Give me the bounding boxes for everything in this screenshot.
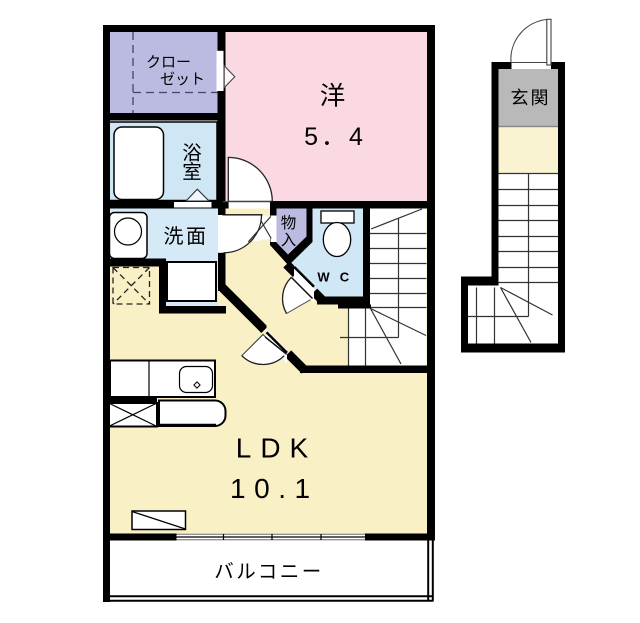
svg-text:LDK: LDK [236,433,317,464]
svg-text:C: C [340,270,350,285]
svg-text:洋: 洋 [320,83,346,111]
svg-text:10.1: 10.1 [230,473,319,504]
svg-text:5．4: 5．4 [304,123,366,151]
svg-text:クロー: クロー [146,54,191,71]
svg-text:玄関: 玄関 [511,88,551,108]
svg-text:洗面: 洗面 [164,225,209,248]
svg-text:物: 物 [281,214,297,232]
svg-text:入: 入 [281,232,297,249]
svg-text:バルコニー: バルコニー [214,561,324,583]
svg-text:室: 室 [182,162,202,184]
svg-text:ゼット: ゼット [160,71,205,88]
svg-text:W: W [317,270,330,285]
